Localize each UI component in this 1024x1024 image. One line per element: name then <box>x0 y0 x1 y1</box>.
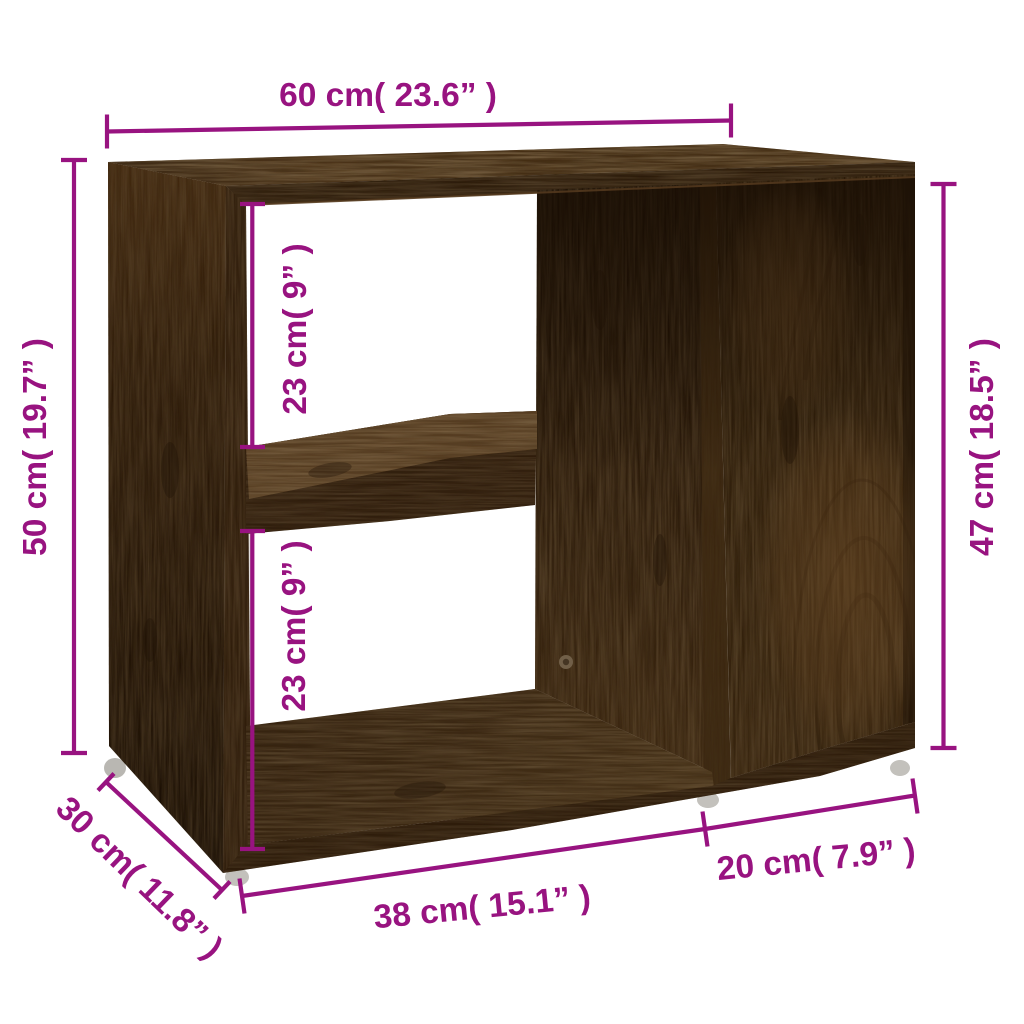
svg-text:23 cm( 9” ): 23 cm( 9” ) <box>276 540 313 711</box>
svg-text:60 cm( 23.6” ): 60 cm( 23.6” ) <box>279 77 497 114</box>
svg-text:23 cm( 9” ): 23 cm( 9” ) <box>277 243 314 414</box>
svg-text:47 cm( 18.5” ): 47 cm( 18.5” ) <box>964 338 1001 556</box>
svg-text:50 cm( 19.7” ): 50 cm( 19.7” ) <box>17 338 54 556</box>
